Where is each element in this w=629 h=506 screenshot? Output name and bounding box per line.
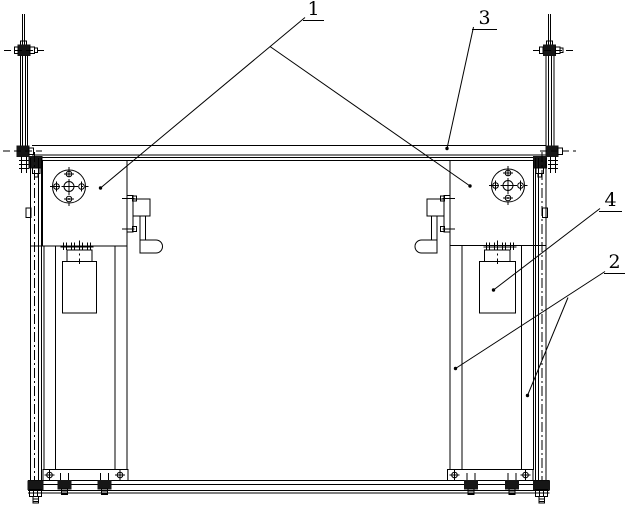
leader-line-1 bbox=[99, 18, 472, 190]
leader-line-2 bbox=[454, 272, 605, 398]
left-foot-block bbox=[28, 481, 43, 503]
right-anchor-bolt-1 bbox=[465, 473, 478, 495]
left-hanger-rod bbox=[3, 14, 45, 173]
left-flange bbox=[50, 167, 89, 206]
right-guide-rail bbox=[536, 152, 548, 494]
engineering-drawing-canvas: 1 3 4 2 bbox=[0, 0, 629, 506]
left-guide-rail bbox=[26, 152, 42, 494]
right-column bbox=[450, 246, 546, 470]
right-base-plate bbox=[448, 470, 534, 481]
left-gearbox-housing bbox=[43, 161, 128, 247]
right-anchor-bolt-2 bbox=[506, 473, 519, 495]
right-flange bbox=[489, 166, 528, 205]
leader-line-3 bbox=[445, 27, 473, 150]
left-base-plate bbox=[43, 470, 128, 481]
callout-label-1: 1 bbox=[303, 0, 324, 21]
left-crank-handle bbox=[122, 196, 163, 254]
left-anchor-bolt-1 bbox=[58, 473, 71, 495]
left-column bbox=[31, 246, 127, 470]
callout-label-2: 2 bbox=[604, 253, 625, 274]
top-beam bbox=[32, 146, 546, 161]
right-crank-handle bbox=[415, 196, 455, 254]
left-motor-unit bbox=[61, 241, 97, 314]
assembly-line-drawing bbox=[0, 0, 629, 506]
right-hanger-rod bbox=[533, 14, 576, 173]
right-foot-block bbox=[534, 481, 550, 503]
callout-label-3: 3 bbox=[472, 9, 497, 30]
left-anchor-bolt-2 bbox=[98, 473, 111, 495]
callout-label-4: 4 bbox=[599, 191, 622, 212]
right-gearbox-housing bbox=[450, 161, 534, 246]
